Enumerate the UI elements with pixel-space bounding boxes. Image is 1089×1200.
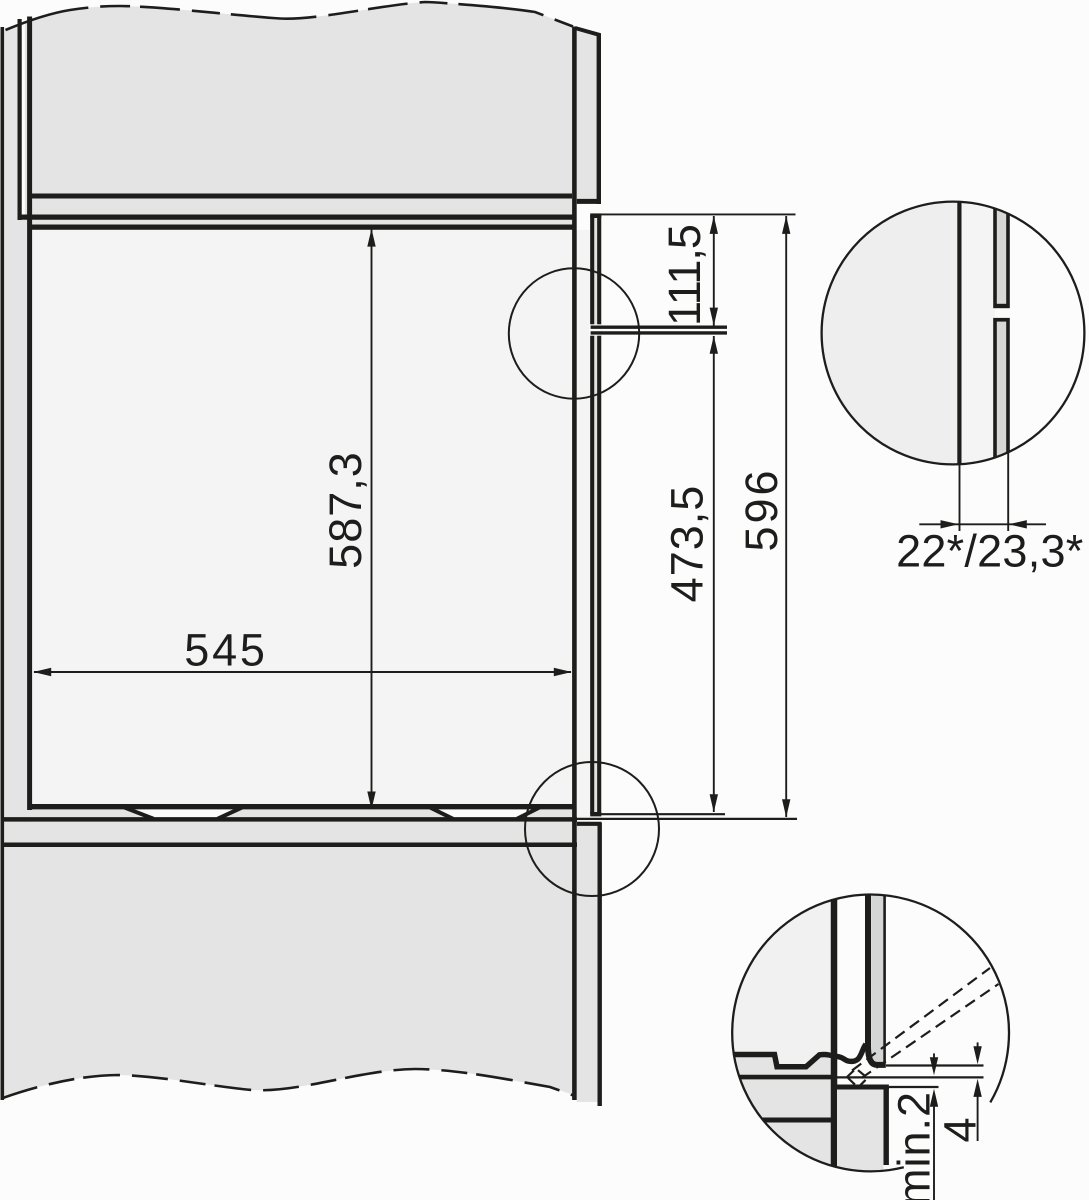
svg-text:596: 596 bbox=[736, 467, 787, 551]
svg-text:545: 545 bbox=[184, 625, 267, 676]
svg-text:4: 4 bbox=[935, 1116, 986, 1142]
svg-text:473,5: 473,5 bbox=[662, 485, 713, 603]
svg-text:587,3: 587,3 bbox=[320, 451, 371, 569]
svg-text:111,5: 111,5 bbox=[659, 225, 710, 326]
svg-text:min.2: min.2 bbox=[889, 1091, 940, 1200]
svg-text:22*/23,3*: 22*/23,3* bbox=[896, 525, 1083, 576]
